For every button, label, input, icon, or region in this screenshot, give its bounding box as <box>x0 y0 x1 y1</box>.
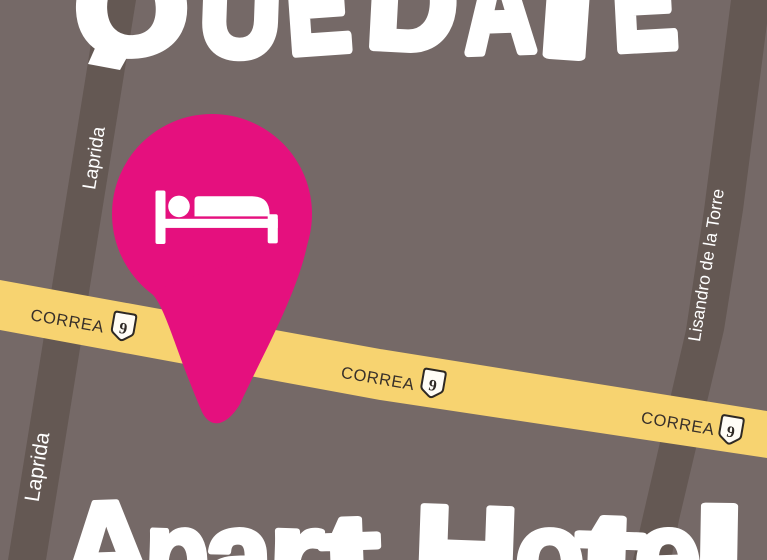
svg-text:D: D <box>364 0 462 79</box>
svg-text:H: H <box>410 478 522 560</box>
svg-text:O: O <box>71 0 192 84</box>
svg-text:a: a <box>202 481 276 560</box>
svg-text:E: E <box>281 0 355 82</box>
svg-text:t: t <box>318 485 384 560</box>
svg-text:l: l <box>689 483 748 560</box>
svg-text:E: E <box>608 0 681 78</box>
svg-text:A: A <box>58 474 156 560</box>
svg-text:U: U <box>197 0 284 85</box>
svg-text:r: r <box>265 482 325 560</box>
